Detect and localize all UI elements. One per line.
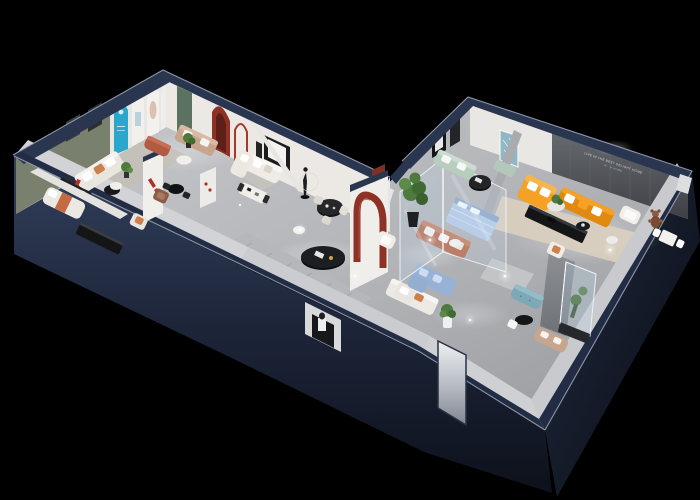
white-side-table xyxy=(606,236,618,244)
entry-pedestal xyxy=(318,318,326,331)
white-pillar xyxy=(200,167,216,208)
table-bowl xyxy=(329,256,333,260)
table-bowl xyxy=(581,223,585,227)
arch-poster-figure xyxy=(150,101,157,119)
plant-pot xyxy=(407,212,419,227)
side-table xyxy=(110,182,122,190)
artwork-frame-small xyxy=(256,141,262,159)
red-logo-dot xyxy=(204,182,207,185)
entry-sculpture xyxy=(319,313,325,320)
cyan-arch-textlines xyxy=(117,130,125,131)
red-logo-dot xyxy=(208,188,211,191)
cyan-arch-textlines xyxy=(117,126,125,127)
round-side-table xyxy=(176,155,192,165)
arch-poster-text xyxy=(135,112,141,126)
floorplan-render: LIVE IN THE BEST DELIGHT HOME N · M HOME xyxy=(0,0,700,500)
